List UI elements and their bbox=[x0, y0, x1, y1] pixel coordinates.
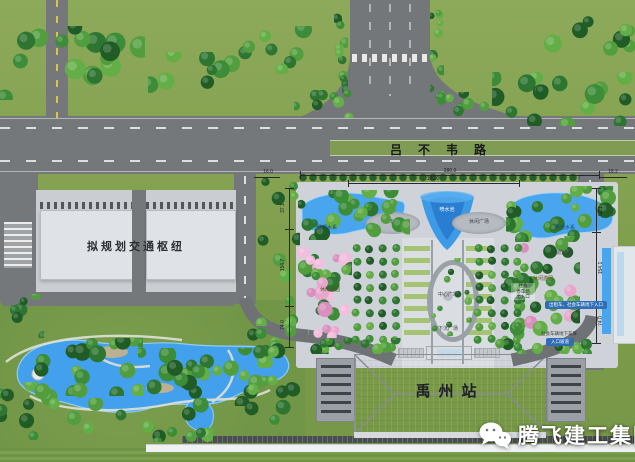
dim-tick bbox=[592, 343, 601, 344]
dim-line bbox=[599, 177, 627, 178]
roadside-bushes bbox=[294, 90, 354, 118]
flowering-grove-west bbox=[298, 234, 352, 338]
pond-right-label: 景观水系 bbox=[550, 226, 580, 232]
station-label: 禹州站 bbox=[354, 380, 546, 401]
dimension-line-top bbox=[300, 175, 600, 176]
dim-line bbox=[254, 177, 280, 178]
taxi-entry-label: 出租车、社会车辆地下入口 bbox=[545, 301, 607, 309]
dimension-line-east bbox=[596, 188, 597, 344]
dim-tick bbox=[300, 171, 301, 179]
hub-label: 拟规划交通枢纽 bbox=[36, 238, 236, 254]
roadside-bushes bbox=[438, 92, 522, 120]
dim-east-2: 154.1 bbox=[598, 253, 604, 283]
leisure-square-right: 休闲广场 bbox=[452, 212, 506, 234]
dim-top-total: 280.0 bbox=[435, 168, 465, 174]
site-plan-rendering: 吕不韦路 拟规划交通枢纽 bbox=[0, 0, 635, 462]
dim-tick bbox=[592, 232, 601, 233]
park-trees bbox=[88, 398, 213, 442]
center-plaza-label: 中心广场 bbox=[432, 293, 464, 299]
watermark-text: 腾飞建工集团 bbox=[518, 420, 635, 450]
dim-left-small: 16.0 bbox=[256, 169, 280, 175]
dimension-line-west bbox=[289, 188, 290, 348]
dim-right-small: 18.2 bbox=[600, 169, 626, 175]
dim-tick bbox=[285, 229, 294, 230]
dim-top-inner: 190.0 bbox=[418, 176, 448, 182]
field-trees bbox=[238, 26, 312, 74]
watermark: 腾飞建工集团 bbox=[478, 420, 635, 450]
canopy-skylight bbox=[617, 252, 624, 336]
sunken-plaza-label: 下沉广场 bbox=[432, 327, 464, 333]
garage-text: 社会车辆地下车库 bbox=[536, 331, 582, 336]
fountain-label: 喷水池 bbox=[432, 208, 462, 214]
dim-tick bbox=[285, 188, 294, 189]
park-trees bbox=[238, 358, 300, 430]
tree-row bbox=[300, 338, 410, 354]
wechat-icon bbox=[478, 420, 512, 450]
crosswalk bbox=[352, 54, 430, 62]
field-trees bbox=[0, 26, 145, 100]
dim-west-1: 37.1 bbox=[280, 193, 286, 223]
parking-exit-line: 出入口 bbox=[511, 294, 535, 300]
parking-exit-label: 社会 停车场 出入口 bbox=[511, 283, 535, 300]
tree-grid-west bbox=[350, 242, 402, 346]
dim-tick bbox=[592, 188, 601, 189]
garage-ramp-label: 入口坡道 bbox=[546, 338, 574, 346]
pond-left-label: 景观水系 bbox=[312, 226, 342, 232]
dim-east-1: 52.1 bbox=[598, 196, 604, 226]
grove-west-label: 休闲游园 bbox=[314, 288, 346, 294]
tree-cluster bbox=[254, 178, 300, 326]
field-trees bbox=[148, 52, 240, 94]
leisure-square-label: 休闲广场 bbox=[469, 220, 489, 226]
dim-west-3: 74.0 bbox=[280, 310, 286, 340]
dim-tick bbox=[285, 347, 294, 348]
fire-lane-label: 消防通道 bbox=[548, 251, 578, 257]
park-trees bbox=[0, 294, 44, 338]
park-trees bbox=[0, 382, 95, 440]
tree-cluster bbox=[298, 190, 410, 240]
dim-tick bbox=[285, 306, 294, 307]
roadside-bushes bbox=[334, 6, 348, 102]
field-trees bbox=[542, 12, 635, 58]
dim-tick bbox=[519, 180, 520, 187]
dimension-line-inner bbox=[348, 183, 520, 184]
tree-cluster bbox=[506, 186, 622, 242]
dim-east-3: 74.0 bbox=[598, 306, 604, 336]
dim-tick bbox=[348, 180, 349, 187]
roadside-bushes bbox=[430, 6, 444, 102]
grove-east-label: 休闲游园 bbox=[527, 277, 559, 283]
dim-west-2: 154.7 bbox=[280, 250, 286, 280]
